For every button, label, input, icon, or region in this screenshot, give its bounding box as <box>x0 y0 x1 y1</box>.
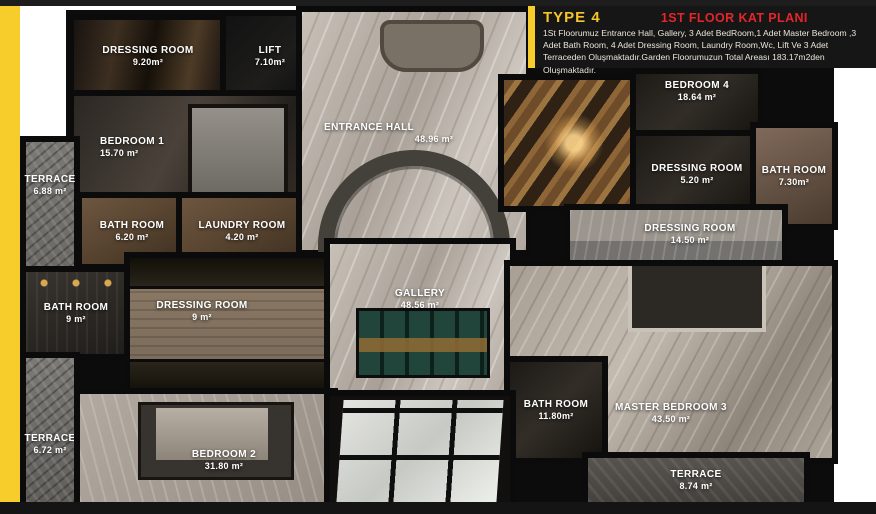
room-label: DRESSING ROOM 5.20 m² <box>636 136 758 212</box>
room-area-label: 7.10m² <box>255 57 285 67</box>
arch-decoration <box>318 150 510 258</box>
room-label: BEDROOM 4 18.64 m² <box>636 74 758 136</box>
bed-decoration <box>188 104 288 196</box>
room-name-label: LAUNDRY ROOM <box>198 220 285 231</box>
room-dressing-room-4: DRESSING ROOM 9 m² <box>130 258 334 392</box>
room-dressing-room-1: DRESSING ROOM 9.20m² <box>74 20 222 92</box>
room-terrace-3: TERRACE 8.74 m² <box>588 458 804 502</box>
room-dressing-room-3: DRESSING ROOM 14.50 m² <box>570 210 782 270</box>
room-dressing-room-2: DRESSING ROOM 5.20 m² <box>636 136 758 212</box>
room-name-label: MASTER BEDROOM 3 <box>615 402 727 413</box>
room-bedroom-2: BEDROOM 2 31.80 m² <box>80 394 332 502</box>
room-label: TERRACE 6.72 m² <box>26 372 74 514</box>
room-label: BATH ROOM 6.20 m² <box>82 198 182 264</box>
room-area-label: 48.96 m² <box>415 134 453 144</box>
room-area-label: 18.64 m² <box>678 92 716 102</box>
room-gallery: GALLERY 48.56 m² <box>330 244 510 394</box>
bottom-bar <box>0 502 876 514</box>
room-area-label: 9.20m² <box>133 57 163 67</box>
room-area-label: 9 m² <box>66 314 86 324</box>
room-area-label: 15.70 m² <box>100 148 138 158</box>
bed-decoration <box>628 266 766 332</box>
room-area-label: 9 m² <box>192 312 212 322</box>
room-name-label: DRESSING ROOM <box>651 163 742 174</box>
room-name-label: BATH ROOM <box>762 165 827 176</box>
room-name-label: ENTRANCE HALL <box>324 122 414 133</box>
room-area-label: 6.72 m² <box>33 445 66 455</box>
wall-lamps-decoration <box>34 278 118 288</box>
header-title-row: TYPE 4 1ST FLOOR KAT PLANI <box>543 9 868 26</box>
room-name-label: LIFT <box>259 45 282 56</box>
room-name-label: DRESSING ROOM <box>156 300 247 311</box>
room-area-label: 7.30m² <box>779 177 809 187</box>
room-area-label: 43.50 m² <box>652 414 690 424</box>
room-label: BATH ROOM 11.80m² <box>510 362 602 458</box>
room-name-label: TERRACE <box>24 433 75 444</box>
room-lift: LIFT 7.10m² <box>226 16 314 96</box>
room-area-label: 4.20 m² <box>225 232 258 242</box>
room-bedroom-4: BEDROOM 4 18.64 m² <box>636 74 758 136</box>
room-label: DRESSING ROOM 14.50 m² <box>584 204 796 264</box>
left-accent-bar <box>0 6 20 502</box>
room-label: TERRACE 8.74 m² <box>588 458 804 502</box>
room-bath-room-4: BATH ROOM 9 m² <box>26 272 126 354</box>
room-name-label: BATH ROOM <box>44 302 109 313</box>
room-name-label: DRESSING ROOM <box>102 45 193 56</box>
room-name-label: TERRACE <box>24 174 75 185</box>
room-label: DRESSING ROOM 9.20m² <box>74 20 222 92</box>
room-entrance-hall: ENTRANCE HALL 48.96 m² <box>302 12 526 250</box>
room-bath-room-1: BATH ROOM 6.20 m² <box>82 198 182 264</box>
type-label: TYPE 4 <box>543 9 601 26</box>
room-name-label: GALLERY <box>395 288 445 299</box>
room-name-label: BATH ROOM <box>524 399 589 410</box>
wardrobe-decoration <box>130 258 334 289</box>
glass-floor <box>330 396 510 502</box>
header-panel: TYPE 4 1ST FLOOR KAT PLANI 1St Floorumuz… <box>528 6 876 68</box>
room-bedroom-1: BEDROOM 1 15.70 m² <box>74 96 302 198</box>
room-label: LIFT 7.10m² <box>226 16 314 96</box>
room-name-label: TERRACE <box>670 469 721 480</box>
room-area-label: 5.20 m² <box>680 175 713 185</box>
bed-decoration <box>156 408 268 460</box>
room-laundry-room: LAUNDRY ROOM 4.20 m² <box>182 198 302 264</box>
room-bath-room-3: BATH ROOM 11.80m² <box>510 362 602 458</box>
gallery-bench-decoration <box>356 308 490 378</box>
room-name-label: BEDROOM 1 <box>100 136 164 147</box>
room-area-label: 14.50 m² <box>671 235 709 245</box>
sofa-decoration <box>380 20 484 72</box>
glass-grid-decoration <box>336 400 503 502</box>
room-name-label: BEDROOM 4 <box>665 80 729 91</box>
plan-description: 1St Floorumuz Entrance Hall, Gallery, 3 … <box>543 27 868 76</box>
room-area-label: 6.20 m² <box>115 232 148 242</box>
room-name-label: DRESSING ROOM <box>644 223 735 234</box>
plan-title: 1ST FLOOR KAT PLANI <box>601 11 868 25</box>
room-name-label: BATH ROOM <box>100 220 165 231</box>
wardrobe-decoration <box>130 359 334 392</box>
floor-plan-page: TYPE 4 1ST FLOOR KAT PLANI 1St Floorumuz… <box>0 0 876 514</box>
room-area-label: 8.74 m² <box>679 481 712 491</box>
room-area-label: 6.88 m² <box>33 186 66 196</box>
room-label: LAUNDRY ROOM 4.20 m² <box>182 198 302 264</box>
chandelier-decoration <box>544 113 604 173</box>
room-terrace-2: TERRACE 6.72 m² <box>26 358 74 502</box>
room-area-label: 11.80m² <box>538 411 573 421</box>
staircase <box>504 80 644 206</box>
